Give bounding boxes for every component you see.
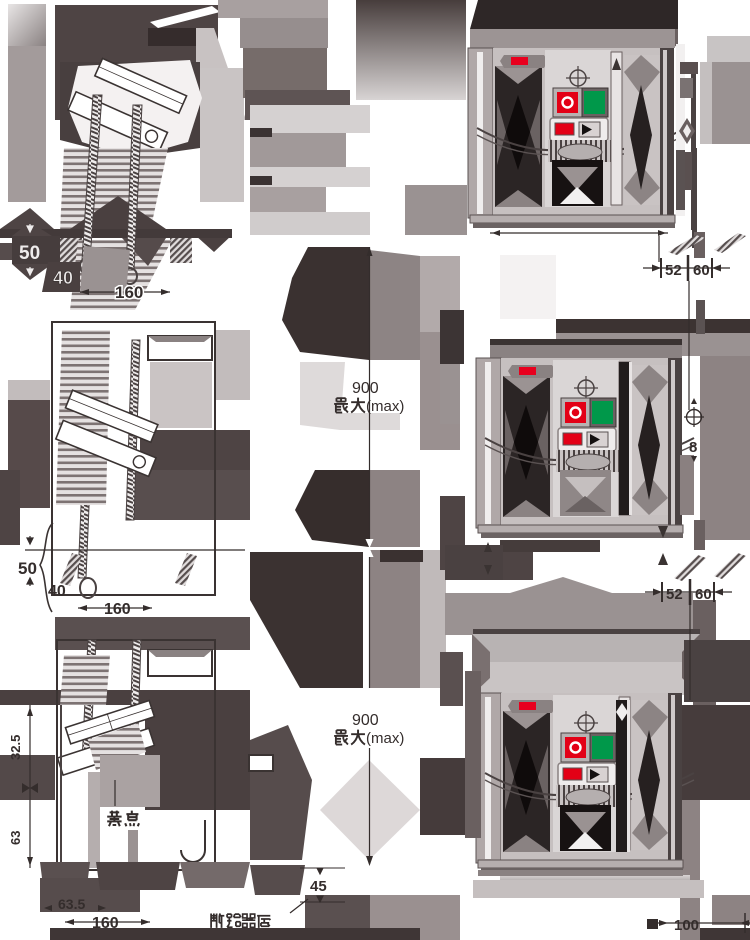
svg-text:60: 60 [693, 262, 710, 279]
svg-text:160: 160 [104, 601, 131, 618]
svg-text:52: 52 [665, 262, 682, 279]
svg-text:100: 100 [674, 917, 699, 934]
svg-text:(max): (max) [366, 730, 404, 747]
svg-text:40: 40 [48, 583, 66, 600]
svg-text:40: 40 [53, 268, 73, 288]
svg-text:52: 52 [666, 586, 683, 603]
svg-text:900: 900 [352, 712, 379, 729]
svg-text:160: 160 [115, 283, 143, 302]
svg-text:63: 63 [8, 831, 23, 845]
svg-text:160: 160 [92, 915, 119, 932]
svg-text:8: 8 [689, 439, 697, 456]
svg-text:32.5: 32.5 [8, 735, 23, 760]
svg-text:45: 45 [310, 878, 327, 895]
svg-text:60: 60 [695, 586, 712, 603]
svg-text:50: 50 [19, 243, 40, 264]
svg-text:63.5: 63.5 [58, 896, 85, 912]
svg-text:50: 50 [18, 559, 37, 578]
svg-text:900: 900 [352, 380, 379, 397]
svg-text:(max): (max) [366, 398, 404, 415]
